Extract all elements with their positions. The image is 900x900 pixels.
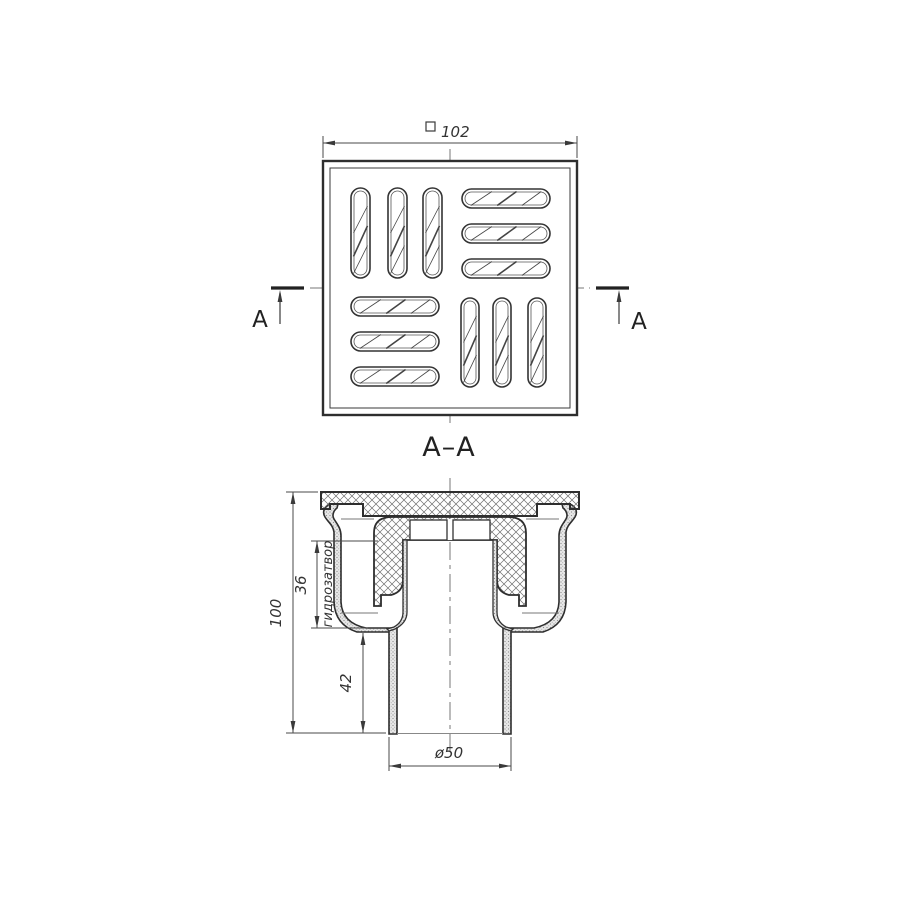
dim-outlet-diameter: ø50 bbox=[434, 744, 463, 762]
dim-outer-size-value: 102 bbox=[441, 123, 470, 141]
cut-label-right: A bbox=[631, 309, 647, 335]
bell-slot-gap bbox=[447, 519, 453, 540]
grate-lid-section bbox=[321, 492, 579, 516]
water-seal-label: гидрозатвор bbox=[321, 541, 336, 628]
square-symbol bbox=[426, 122, 435, 131]
dim-total-height: 100 bbox=[267, 599, 285, 628]
floor-drain-technical-drawing: 102 A A A–A bbox=[0, 0, 900, 900]
bell-top-plate-right bbox=[453, 520, 490, 540]
top-view: 102 A A bbox=[252, 122, 647, 427]
bell-top-plate-left bbox=[410, 520, 447, 540]
drawing-canvas: 102 A A A–A bbox=[0, 0, 900, 900]
dim-water-seal: 36 bbox=[292, 575, 310, 594]
section-title: A–A bbox=[422, 432, 475, 463]
section-view: 100 36 гидрозатвор 42 ø50 bbox=[267, 478, 579, 771]
cut-label-left: A bbox=[252, 307, 268, 333]
dim-outlet-length: 42 bbox=[337, 673, 355, 692]
